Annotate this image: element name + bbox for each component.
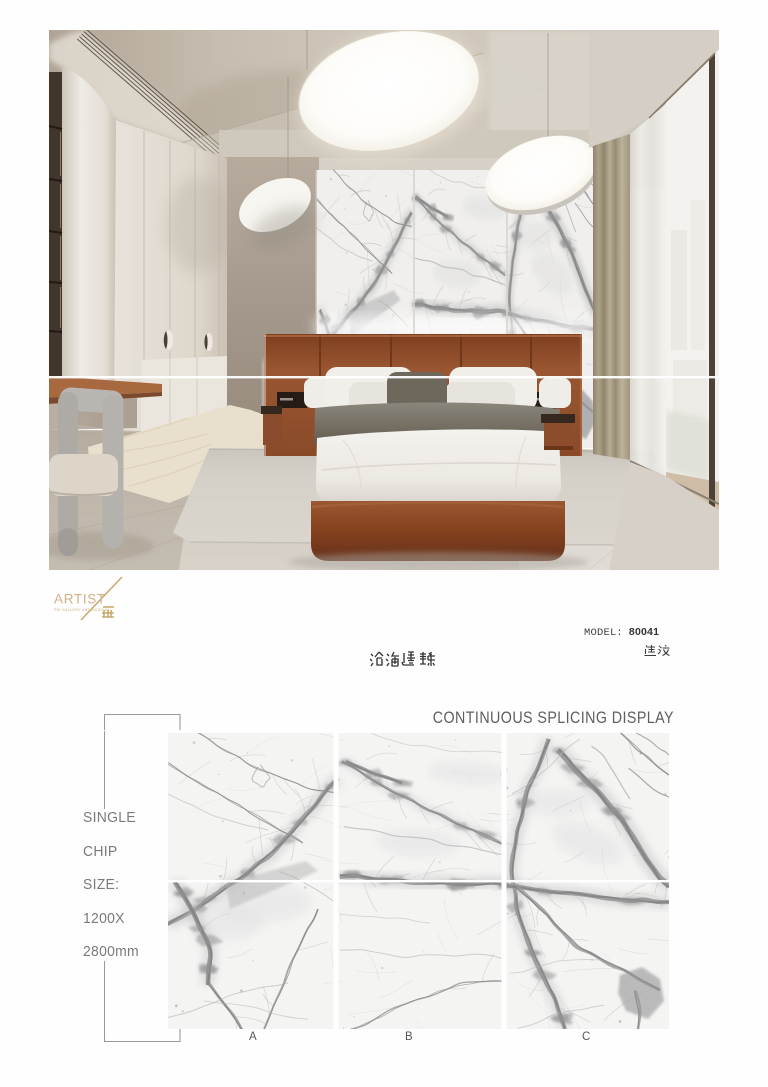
svg-text:ARTIST: ARTIST xyxy=(54,592,106,607)
svg-text:PW GALLERY ART MUSEUM: PW GALLERY ART MUSEUM xyxy=(54,608,110,612)
